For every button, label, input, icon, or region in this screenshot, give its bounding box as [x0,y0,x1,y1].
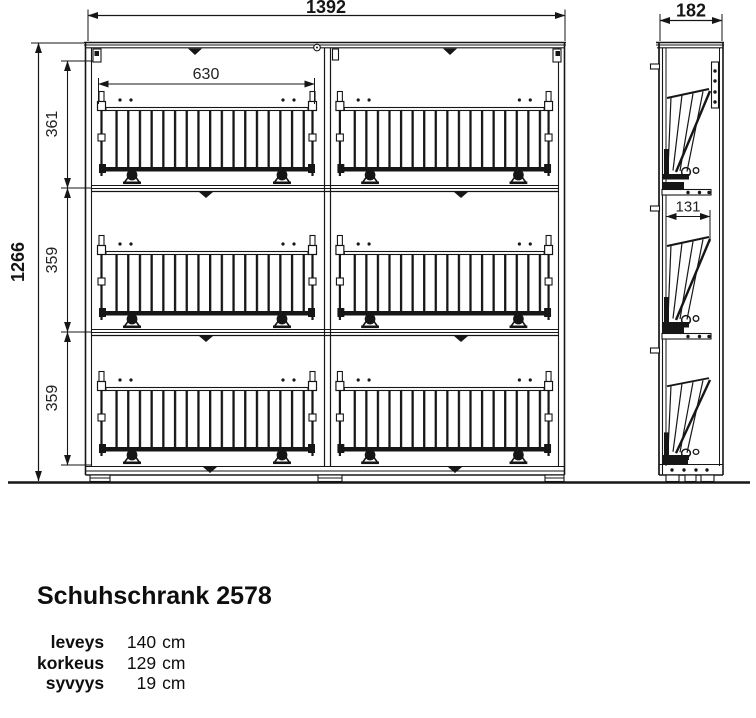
tilted-basket [662,237,710,328]
dim-label-side-depth: 182 [676,1,706,21]
spec-value-height: 129 [118,653,156,674]
wire-basket [336,236,553,329]
side-view [651,43,725,482]
shelf-hardware [662,182,711,195]
dim-label-compartment-bottom: 359 [44,385,61,412]
spec-label-depth: syvyys [37,673,118,694]
spec-row-width: leveys 140cm [37,632,185,653]
shelf-hardware [662,326,711,339]
technical-drawing: 1392 182 1266 361 359 359 [0,0,756,540]
spec-label-height: korkeus [37,653,118,674]
wire-basket [98,236,317,329]
wire-basket [98,372,317,465]
spec-value-width: 140 [118,632,156,653]
spec-row-depth: syvyys 19cm [37,673,185,694]
corner-brackets [93,44,561,62]
dimension-front-width: 1392 [88,0,565,41]
dimension-side-basket: 131 [667,199,711,243]
wire-basket [336,372,553,465]
spec-value-depth: 19 [118,673,156,694]
dim-label-basket-width: 630 [193,66,220,83]
cabinet-feet [90,475,564,482]
wire-basket [98,92,317,185]
spec-unit-width: cm [156,632,185,652]
front-view [84,43,566,482]
dim-label-side-basket: 131 [675,199,700,216]
dim-label-compartment-top: 361 [44,111,61,138]
drawing-sheet: 1392 182 1266 361 359 359 [0,0,756,718]
tilted-basket [662,89,710,180]
spec-table: leveys 140cm korkeus 129cm syvyys 19cm [37,632,185,694]
dim-label-height: 1266 [8,242,28,282]
wire-basket [336,92,553,185]
hinge-rail [712,62,719,108]
spec-unit-depth: cm [156,673,185,693]
dim-label-compartment-middle: 359 [44,247,61,274]
spec-label-width: leveys [37,632,118,653]
spec-row-height: korkeus 129cm [37,653,185,674]
dim-label-front-width: 1392 [306,0,346,17]
product-title: Schuhschrank 2578 [37,582,272,611]
cabinet-feet [666,475,714,482]
tilted-basket [662,378,710,460]
dimension-basket-width: 630 [99,66,315,104]
dimension-side-depth: 182 [660,1,722,42]
spec-unit-height: cm [156,653,185,673]
